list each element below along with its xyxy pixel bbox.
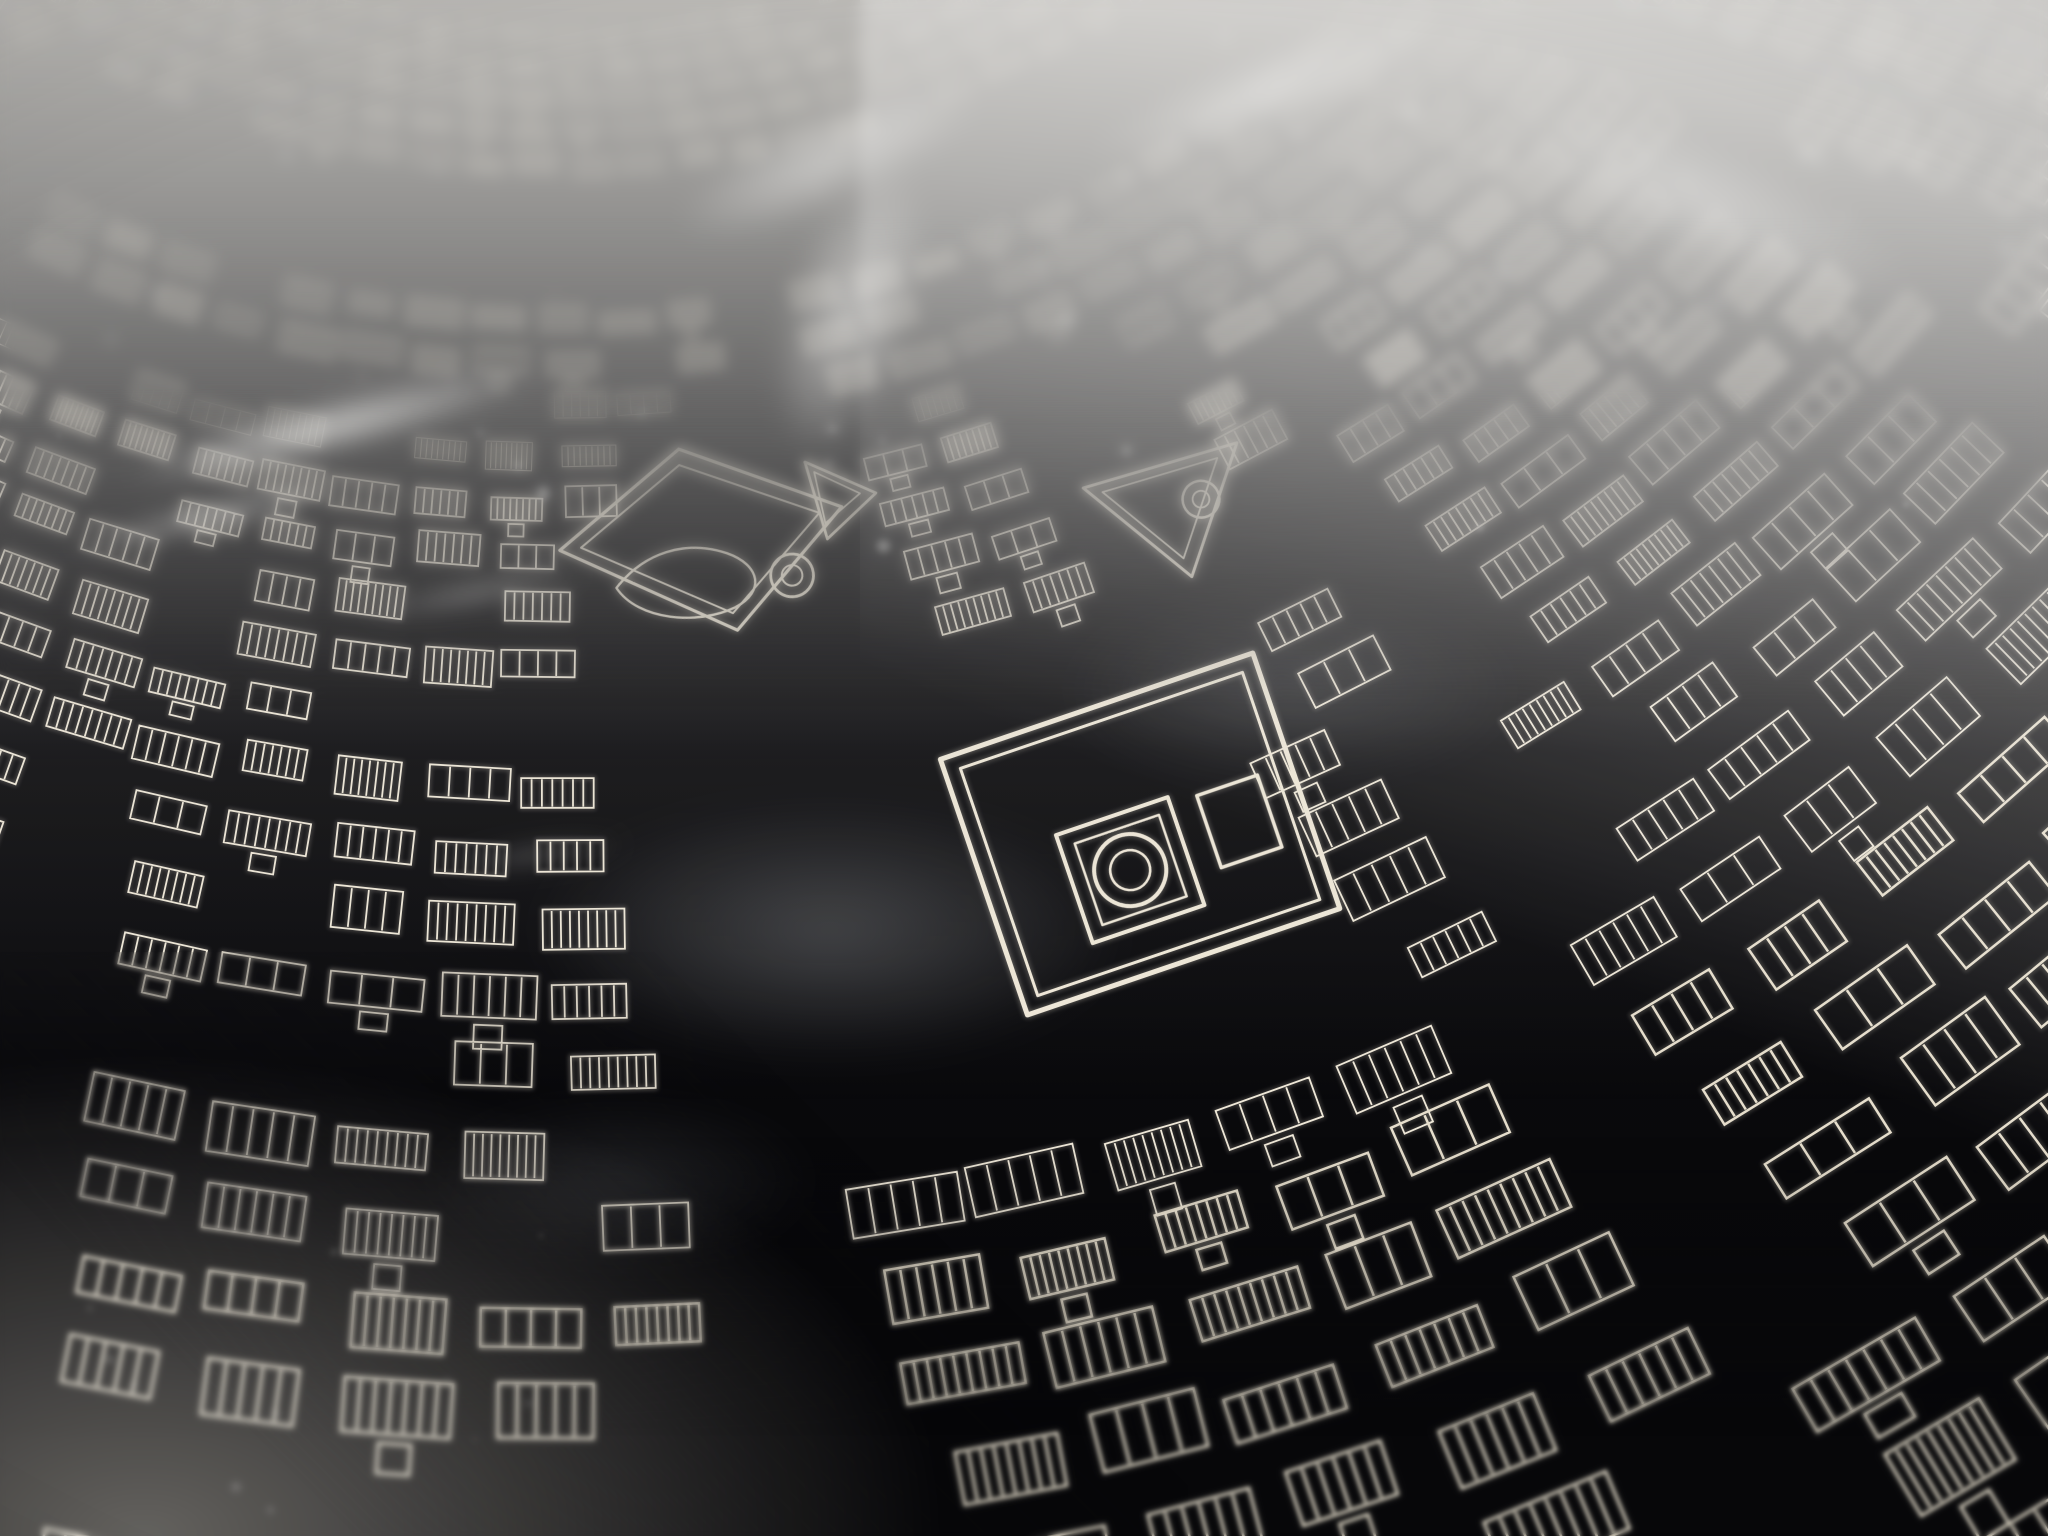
metal-plate-background [0,0,2048,1536]
photo-engraved-metal-citymap [0,0,2048,1536]
citymap-engraving [0,0,2048,1536]
canal-gloss-highlight [530,800,1130,1060]
